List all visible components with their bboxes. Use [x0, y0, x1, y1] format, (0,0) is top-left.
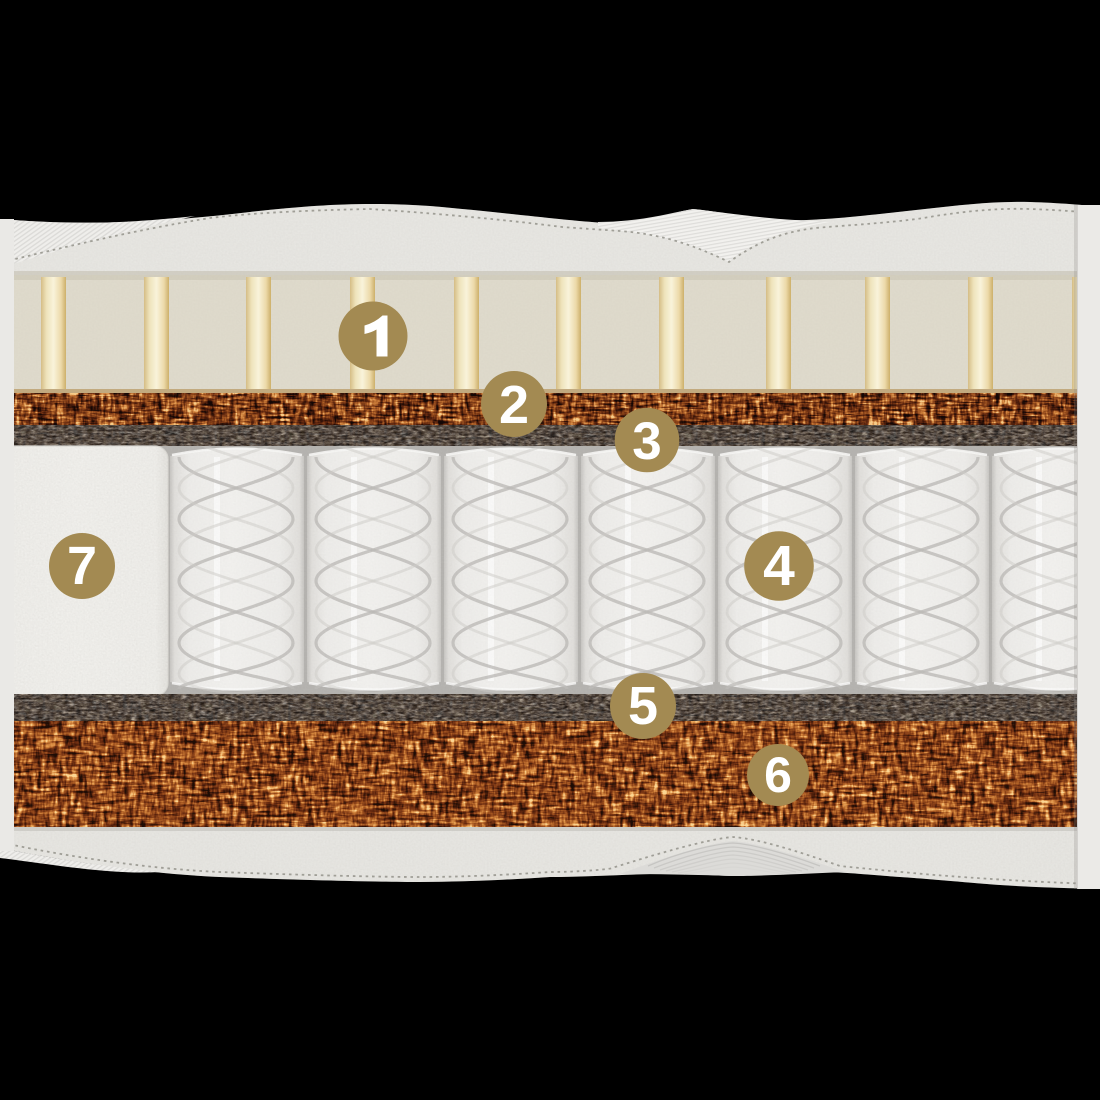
svg-text:4: 4: [763, 534, 795, 598]
svg-text:7: 7: [67, 536, 97, 596]
svg-text:5: 5: [628, 676, 658, 736]
svg-text:6: 6: [764, 747, 792, 803]
svg-text:3: 3: [632, 412, 661, 471]
svg-text:2: 2: [499, 375, 529, 435]
